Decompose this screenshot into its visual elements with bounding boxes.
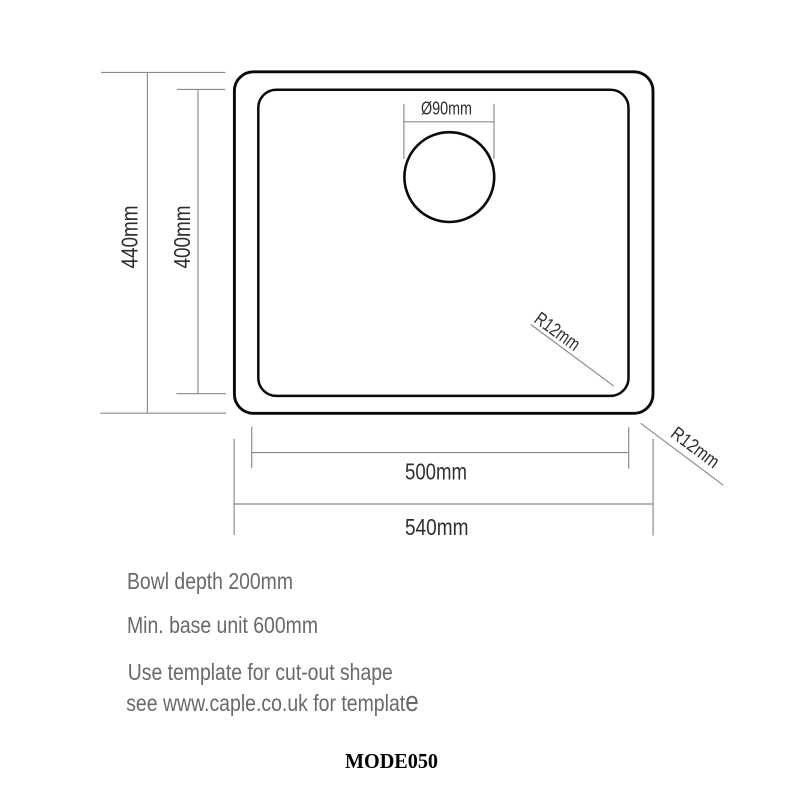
svg-text:Bowl depth 200mm: Bowl depth 200mm bbox=[127, 568, 293, 594]
svg-text:MODE050: MODE050 bbox=[345, 749, 438, 773]
svg-text:440mm: 440mm bbox=[117, 206, 143, 269]
svg-text:Min. base unit 600mm: Min. base unit 600mm bbox=[127, 612, 318, 638]
svg-text:500mm: 500mm bbox=[405, 458, 467, 484]
svg-text:see www.caple.co.uk for templa: see www.caple.co.uk for template bbox=[126, 686, 419, 718]
svg-text:Ø90mm: Ø90mm bbox=[421, 99, 472, 119]
svg-text:400mm: 400mm bbox=[169, 206, 195, 269]
svg-text:Use template for cut-out shape: Use template for cut-out shape bbox=[128, 659, 393, 685]
svg-text:540mm: 540mm bbox=[405, 514, 469, 540]
